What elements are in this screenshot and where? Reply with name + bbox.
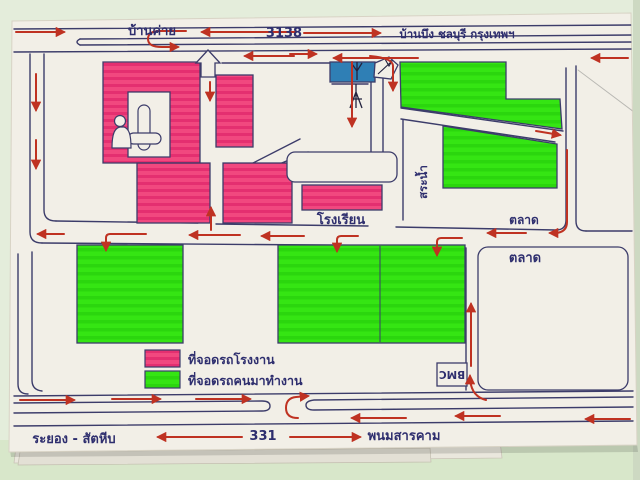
factory-east-wing <box>216 75 253 147</box>
label-ban-bueng-chonburi-bangkok: บ้านบึง ชลบุรี กรุงเทพฯ <box>399 27 514 42</box>
label-bmc: BMC <box>439 368 465 380</box>
map-photo: ที่จอดรถโรงงาน ที่จอดรถคนมาทำงาน บ้านค่า… <box>0 0 640 480</box>
school-building-outline <box>287 152 397 182</box>
hand-drawn-map: ที่จอดรถโรงงาน ที่จอดรถคนมาทำงาน บ้านค่า… <box>0 0 640 480</box>
factory-south-west-building <box>137 163 210 223</box>
label-school: โรงเรียน <box>316 211 365 228</box>
label-ban-khai: บ้านค่าย <box>128 23 176 39</box>
parking-lot-south-west <box>77 245 183 343</box>
parking-lot-south <box>278 245 465 343</box>
label-rayong-sattahip: ระยอง - สัตหีบ <box>32 431 115 447</box>
legend-swatch-worker <box>145 371 180 388</box>
label-phanom-sarakham: พนมสารคาม <box>368 429 441 444</box>
legend-worker-label: ที่จอดรถคนมาทำงาน <box>188 372 303 388</box>
school-building <box>302 185 382 210</box>
legend-swatch-factory <box>145 350 180 367</box>
label-route-3138: 3138 <box>266 26 302 41</box>
legend-factory-label: ที่จอดรถโรงงาน <box>188 351 275 367</box>
label-pond: สระน้ำ <box>414 165 430 199</box>
market-block <box>478 247 628 390</box>
factory-south-east-building <box>223 163 292 223</box>
label-market-upper: ตลาด <box>509 213 539 227</box>
label-route-331: 331 <box>249 429 276 444</box>
label-market-lower: ตลาด <box>509 251 541 266</box>
